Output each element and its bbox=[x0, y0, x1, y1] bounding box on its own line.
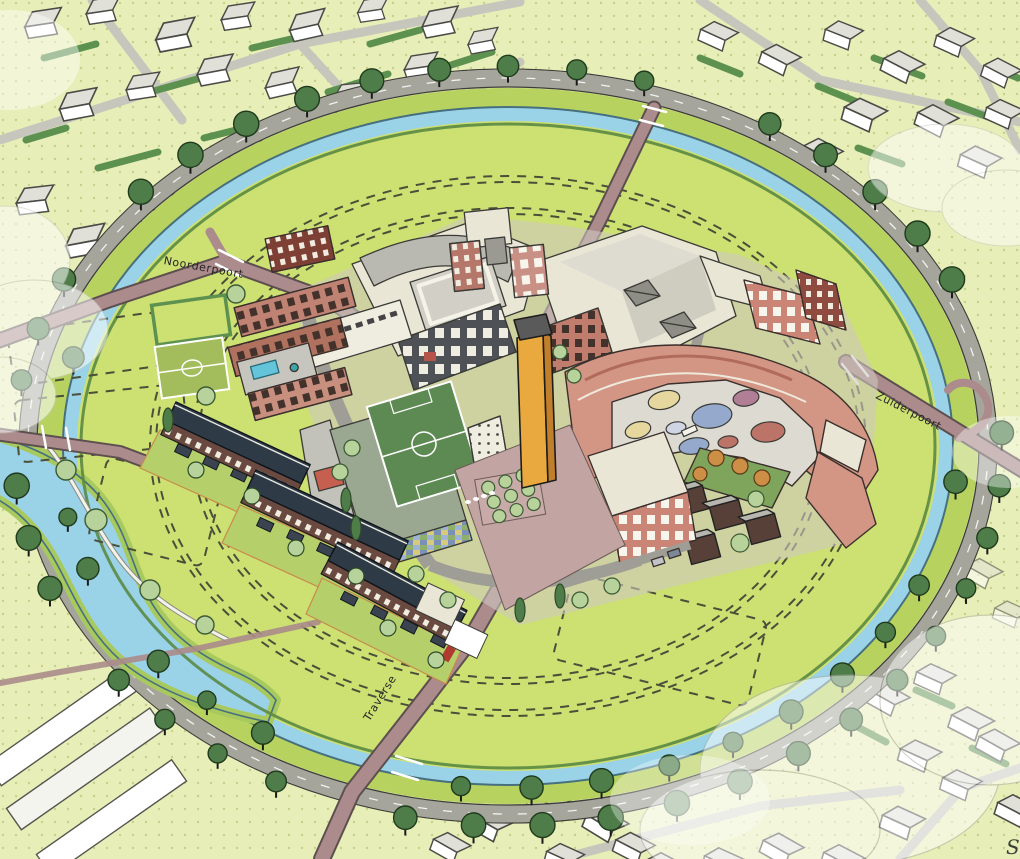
small-soccer-pitch bbox=[155, 338, 230, 399]
cloud-south bbox=[610, 755, 770, 845]
signature-mark: S bbox=[1006, 835, 1020, 859]
aerial-plan-canvas: Noorderpoort Zuiderpoort Traverse S bbox=[0, 0, 1020, 859]
masterplan-illustration: Noorderpoort Zuiderpoort Traverse S bbox=[0, 0, 1020, 859]
